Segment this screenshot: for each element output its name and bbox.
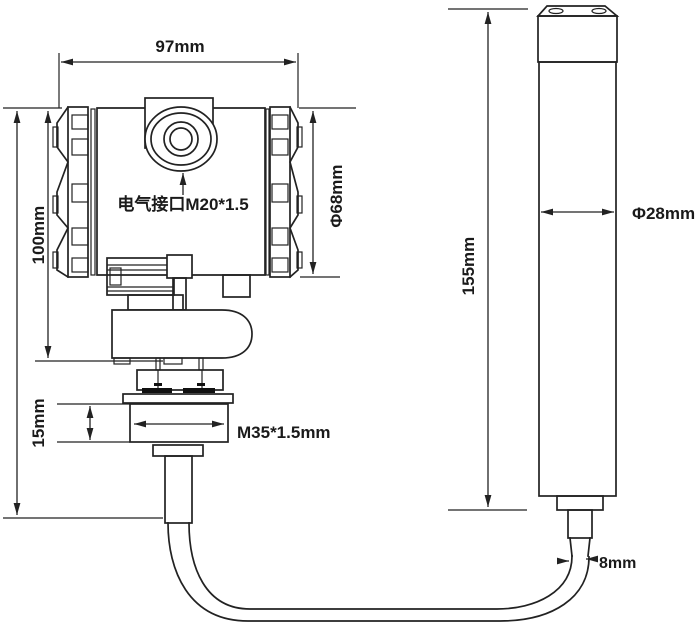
- head-lower-fittings: [107, 255, 250, 310]
- dimension-probe-diameter: Φ28mm: [541, 204, 695, 223]
- probe-step: [557, 496, 603, 510]
- dimension-probe-length: 155mm: [448, 9, 528, 510]
- label-width-97mm: 97mm: [155, 37, 204, 56]
- label-thread-height-15mm: 15mm: [29, 398, 48, 447]
- head-left-cap: [53, 107, 95, 277]
- label-cable-diameter-8mm: 8mm: [599, 555, 636, 572]
- cable: [168, 523, 590, 621]
- probe-cable-gland: [568, 510, 592, 538]
- callout-electrical-port: 电气接口M20*1.5: [117, 173, 248, 214]
- label-electrical-port: 电气接口M20*1.5: [117, 194, 248, 214]
- label-head-diameter-68mm: Φ68mm: [327, 164, 346, 227]
- dimension-thread-height: 15mm: [29, 398, 130, 447]
- dimension-head-diameter: Φ68mm: [299, 108, 356, 277]
- label-probe-length-155mm: 155mm: [459, 237, 478, 296]
- probe-top-face: [538, 6, 617, 16]
- label-probe-diameter-28mm: Φ28mm: [632, 204, 695, 223]
- label-thread-m35: M35*1.5mm: [237, 423, 331, 442]
- drawing-svg: 97mm 100mm 15mm Φ68mm 电气接口M20*1.5 M35*1.…: [0, 0, 700, 629]
- probe-body: [539, 62, 616, 496]
- dimension-drawing: 97mm 100mm 15mm Φ68mm 电气接口M20*1.5 M35*1.…: [0, 0, 700, 629]
- electrical-port: [145, 98, 217, 171]
- probe-cap: [538, 16, 617, 62]
- thread-m35-block: [130, 404, 228, 442]
- transmitter-head: [53, 98, 302, 523]
- probe-top-hole-right: [592, 9, 606, 14]
- probe-top-hole-left: [549, 9, 563, 14]
- callout-thread-m35: M35*1.5mm: [134, 423, 331, 442]
- head-right-cap: [266, 107, 302, 277]
- stem-tube: [165, 456, 192, 523]
- probe: [538, 6, 617, 538]
- process-connection: [114, 358, 233, 523]
- capsule-body: [112, 310, 252, 358]
- label-height-100mm: 100mm: [29, 206, 48, 265]
